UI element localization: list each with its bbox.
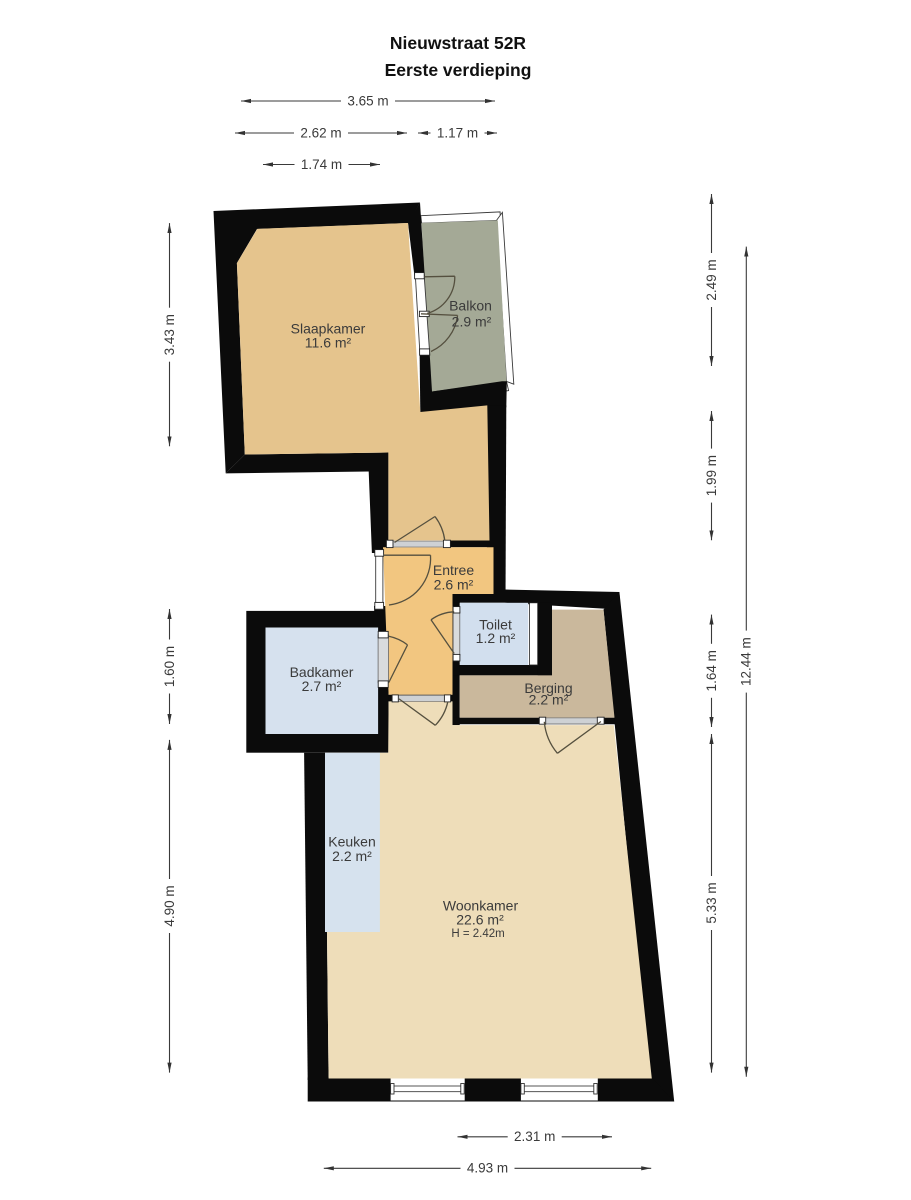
svg-text:Nieuwstraat 52R: Nieuwstraat 52R (390, 33, 527, 53)
svg-text:2.62 m: 2.62 m (300, 125, 341, 140)
svg-text:2.2 m²: 2.2 m² (529, 692, 569, 708)
svg-text:3.65 m: 3.65 m (347, 93, 388, 108)
svg-text:2.6 m²: 2.6 m² (434, 577, 474, 593)
svg-text:H = 2.42m: H = 2.42m (451, 928, 504, 940)
svg-text:1.2 m²: 1.2 m² (476, 630, 516, 646)
svg-text:Eerste verdieping: Eerste verdieping (385, 60, 532, 80)
svg-text:2.7 m²: 2.7 m² (302, 678, 342, 694)
svg-text:2.2 m²: 2.2 m² (332, 848, 372, 864)
svg-text:4.93 m: 4.93 m (467, 1161, 508, 1176)
svg-text:2.31 m: 2.31 m (514, 1129, 555, 1144)
svg-text:2.9 m²: 2.9 m² (452, 314, 492, 330)
svg-text:5.33 m: 5.33 m (704, 882, 719, 923)
svg-text:1.64 m: 1.64 m (704, 650, 719, 691)
svg-text:12.44 m: 12.44 m (739, 637, 754, 686)
svg-text:3.43 m: 3.43 m (162, 314, 177, 355)
svg-text:22.6 m²: 22.6 m² (456, 912, 504, 928)
svg-text:2.49 m: 2.49 m (704, 259, 719, 300)
svg-text:1.17 m: 1.17 m (437, 125, 478, 140)
svg-text:Balkon: Balkon (449, 298, 492, 314)
svg-text:11.6 m²: 11.6 m² (305, 335, 352, 351)
svg-text:4.90 m: 4.90 m (162, 885, 177, 926)
svg-text:1.74 m: 1.74 m (301, 157, 342, 172)
svg-text:1.99 m: 1.99 m (704, 455, 719, 496)
svg-text:1.60 m: 1.60 m (162, 646, 177, 687)
